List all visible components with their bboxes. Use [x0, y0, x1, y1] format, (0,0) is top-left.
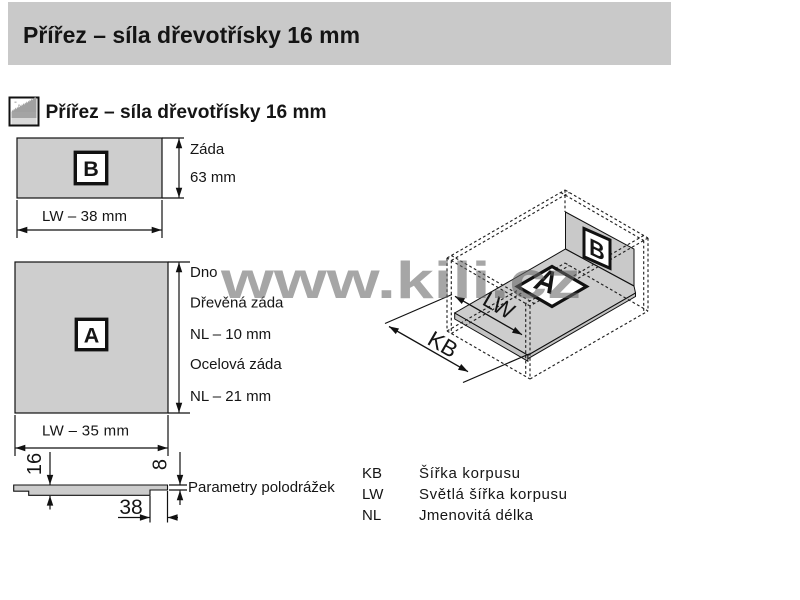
svg-text:NL – 21 mm: NL – 21 mm	[190, 388, 271, 405]
svg-text:www.kili.cz: www.kili.cz	[220, 252, 581, 310]
svg-text:Šířka korpusu: Šířka korpusu	[419, 465, 520, 482]
svg-text:Přířez – síla dřevotřísky 16 m: Přířez – síla dřevotřísky 16 mm	[46, 102, 327, 123]
svg-text:LW – 35 mm: LW – 35 mm	[42, 423, 129, 440]
svg-text:Přířez – síla dřevotřísky 16 m: Přířez – síla dřevotřísky 16 mm	[23, 22, 360, 48]
svg-text:KB: KB	[362, 465, 382, 482]
svg-text:Parametry polodrážek: Parametry polodrážek	[188, 479, 335, 496]
svg-text:NL – 10 mm: NL – 10 mm	[190, 326, 271, 343]
svg-text:LW: LW	[362, 486, 384, 503]
svg-text:16: 16	[24, 453, 46, 475]
svg-text:63 mm: 63 mm	[190, 169, 236, 186]
svg-text:8: 8	[150, 459, 172, 470]
svg-text:A: A	[84, 324, 100, 348]
svg-text:Záda: Záda	[190, 141, 225, 158]
svg-text:NL: NL	[362, 507, 381, 524]
svg-text:Dno: Dno	[190, 264, 218, 281]
svg-text:Světlá šířka korpusu: Světlá šířka korpusu	[419, 486, 567, 503]
svg-text:Jmenovitá délka: Jmenovitá délka	[419, 507, 534, 524]
svg-text:B: B	[83, 157, 99, 181]
svg-text:LW – 38 mm: LW – 38 mm	[42, 208, 127, 225]
svg-text:Ocelová záda: Ocelová záda	[190, 356, 282, 373]
svg-text:38: 38	[119, 496, 142, 519]
